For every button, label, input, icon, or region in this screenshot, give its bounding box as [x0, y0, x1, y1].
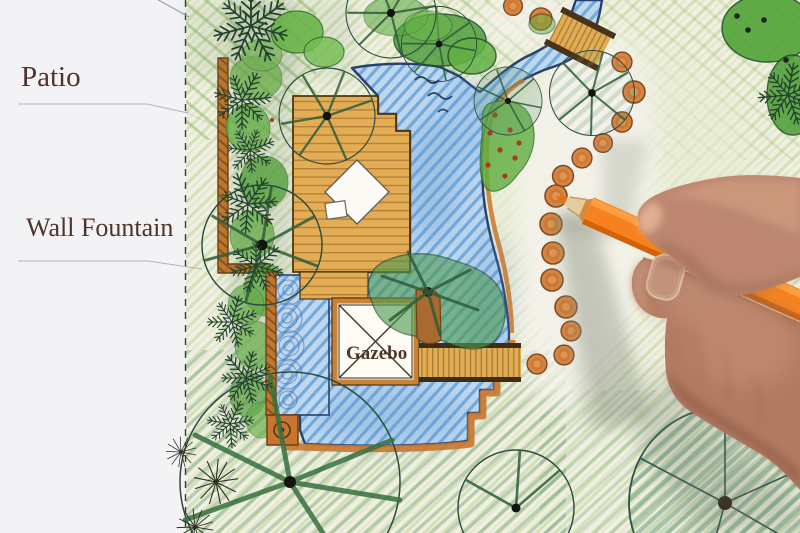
svg-text:Gazebo: Gazebo: [346, 343, 407, 364]
svg-text:Wall Fountain: Wall Fountain: [26, 213, 173, 242]
svg-text:Patio: Patio: [21, 61, 81, 93]
